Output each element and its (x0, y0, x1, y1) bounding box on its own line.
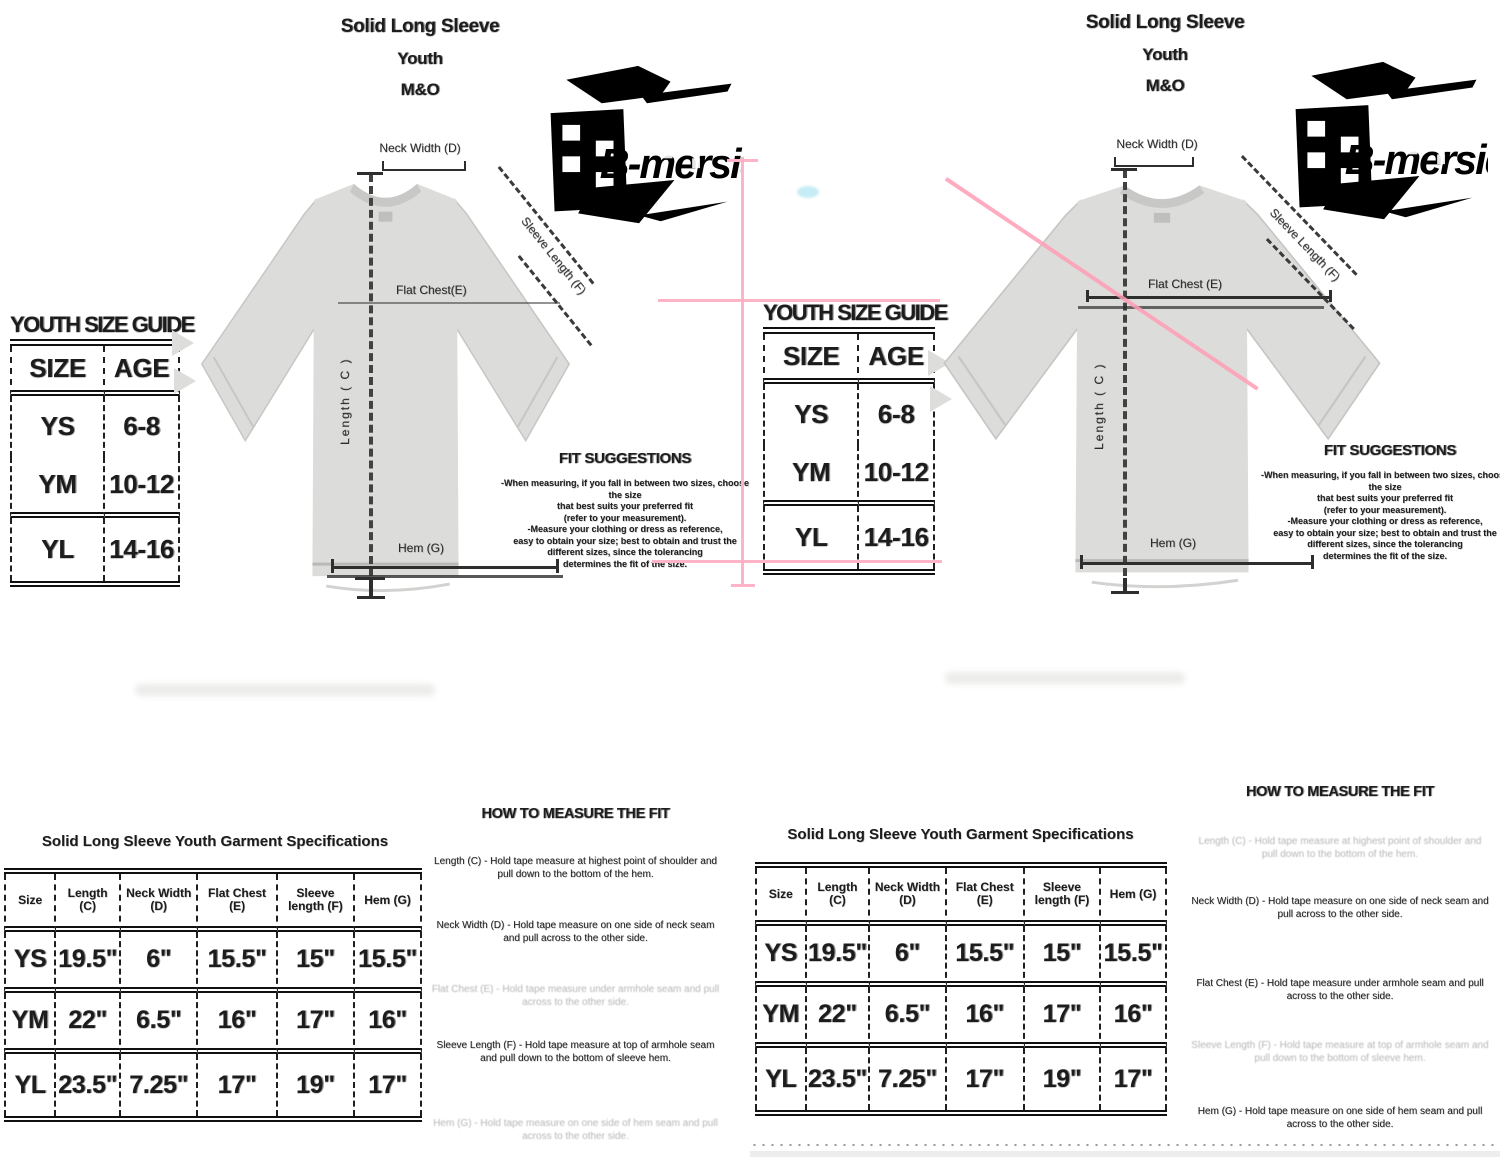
pink-vertical-line (741, 157, 744, 587)
left-hem-label: Hem (G) (398, 541, 444, 555)
spec-cell: YL (755, 1048, 807, 1110)
size-header: SIZE (763, 334, 859, 384)
right-hem-line (1080, 562, 1314, 565)
age-cell: 6-8 (859, 384, 935, 445)
age-cell: 10-12 (105, 457, 180, 518)
left-title-line3: M&O (310, 80, 530, 100)
left-chest-line (338, 302, 560, 304)
fit-line: -When measuring, if you fall in between … (1260, 470, 1500, 493)
fit-line: easy to obtain your size; best to obtain… (1260, 528, 1500, 540)
spec-cell: 6" (870, 926, 946, 987)
right-title-line1: Solid Long Sleeve (1055, 12, 1275, 34)
left-panel-title: Solid Long Sleeve Youth M&O (310, 16, 530, 100)
spec-cell: 17" (198, 1054, 277, 1116)
fit-line: -When measuring, if you fall in between … (500, 478, 750, 501)
spec-cell: 19.5" (807, 926, 871, 987)
smudge-artifact (945, 672, 1185, 684)
right-length-stub (1123, 578, 1127, 592)
spec-cell: 6.5" (870, 987, 946, 1048)
spec-header: Length (C) (807, 868, 871, 926)
how-to-left-heading: HOW TO MEASURE THE FIT (428, 806, 723, 822)
left-length-cap-top (357, 172, 383, 175)
spec-cell: 15.5" (947, 926, 1025, 987)
spec-cell: 15.5" (355, 932, 422, 993)
how-to-right-heading: HOW TO MEASURE THE FIT (1190, 784, 1490, 800)
right-title-line2: Youth (1055, 45, 1275, 65)
spec-cell: 22" (56, 993, 121, 1054)
spec-header: Flat Chest (E) (947, 868, 1025, 926)
left-hem-tick-left (331, 559, 334, 573)
left-size-guide-title: YOUTH SIZE GUIDE (10, 312, 180, 338)
right-length-stub-cap (1111, 591, 1139, 594)
left-length-label: Length ( C ) (338, 325, 352, 445)
left-length-stub-cap (357, 596, 385, 599)
smudge-artifact (135, 684, 435, 696)
how-to-para-neck: Neck Width (D) - Hold tape measure on on… (428, 920, 723, 945)
spec-cell: 16" (355, 993, 422, 1054)
spec-cell: 19.5" (56, 932, 121, 993)
right-hem-label: Hem (G) (1150, 536, 1196, 550)
size-cell: YL (763, 506, 859, 569)
spec-cell: YM (755, 987, 807, 1048)
fit-line: (refer to your measurement). (1260, 505, 1500, 517)
fit-line: different sizes, since the tolerancing (500, 547, 750, 559)
right-length-cap-top (1111, 168, 1137, 171)
spec-header: Neck Width (D) (870, 868, 946, 926)
fit-line: that best suits your preferred fit (500, 501, 750, 513)
spec-cell: 15.5" (1101, 926, 1167, 987)
spec-cell: 17" (278, 993, 355, 1054)
logo-graphic: B-mersid (1288, 58, 1488, 230)
perforation-bar (750, 1151, 1500, 1157)
right-chest-line-2 (1078, 306, 1324, 309)
age-cell: 14-16 (105, 518, 180, 581)
spec-header: Size (755, 868, 807, 926)
spec-cell: 15.5" (198, 932, 277, 993)
right-neck-tick-left (1114, 157, 1116, 167)
size-cell: YS (10, 396, 105, 457)
left-title-line2: Youth (310, 49, 530, 69)
fit-line: (refer to your measurement). (500, 513, 750, 525)
center-size-guide-rule (763, 327, 935, 334)
age-header: AGE (859, 334, 935, 384)
left-title-line1: Solid Long Sleeve (310, 16, 530, 38)
left-neck-tick-left (382, 161, 384, 171)
spec-header: Hem (G) (1101, 868, 1167, 926)
age-cell: 6-8 (105, 396, 180, 457)
left-length-dashed-line (369, 174, 373, 576)
left-brand-logo: B-mersid (543, 62, 743, 234)
spec-cell: 23.5" (56, 1054, 121, 1116)
spec-cell: 17" (1101, 1048, 1167, 1110)
left-fit-text: -When measuring, if you fall in between … (500, 478, 750, 570)
right-length-dashed-line (1123, 170, 1127, 588)
center-size-guide-table: SIZE AGE YS 6-8 YM 10-12 YL 14-16 (763, 334, 935, 575)
spec-cell: 7.25" (121, 1054, 198, 1116)
spec-header: Flat Chest (E) (198, 874, 277, 932)
spec-header: Sleeve length (F) (1025, 868, 1101, 926)
right-title-line3: M&O (1055, 76, 1275, 96)
age-cell: 10-12 (859, 445, 935, 506)
left-flat-chest-label: Flat Chest(E) (396, 283, 467, 297)
right-hem-tick-left (1080, 555, 1083, 569)
fit-line: determines the fit of the size. (1260, 551, 1500, 563)
spec-left-table: Size Length (C) Neck Width (D) Flat Ches… (4, 868, 422, 1122)
spec-header: Hem (G) (355, 874, 422, 932)
left-size-guide-rule (10, 339, 180, 346)
size-cell: YM (10, 457, 105, 518)
spec-cell: YS (4, 932, 56, 993)
how-to-para-neck: Neck Width (D) - Hold tape measure on on… (1190, 896, 1490, 921)
right-neck-bracket (1114, 165, 1194, 167)
size-header: SIZE (10, 346, 105, 396)
right-chest-tick-left (1086, 290, 1089, 302)
left-neck-bracket (382, 169, 466, 171)
left-length-stub (369, 580, 373, 596)
spec-cell: 19" (1025, 1048, 1101, 1110)
how-to-para-sleeve: Sleeve Length (F) - Hold tape measure at… (1190, 1040, 1490, 1065)
pink-bottom-cap (731, 584, 755, 587)
spec-cell: YL (4, 1054, 56, 1116)
spec-cell: 6.5" (121, 993, 198, 1054)
right-neck-tick-right (1192, 157, 1194, 167)
right-length-label: Length ( C ) (1092, 330, 1106, 450)
right-fit-text: -When measuring, if you fall in between … (1260, 470, 1500, 562)
how-to-para-hem: Hem (G) - Hold tape measure on one side … (428, 1118, 723, 1143)
spec-cell: 17" (1025, 987, 1101, 1048)
logo-graphic: B-mersid (543, 62, 743, 234)
fit-line: -Measure your clothing or dress as refer… (1260, 516, 1500, 528)
spec-cell: YM (4, 993, 56, 1054)
left-size-guide-table: SIZE AGE YS 6-8 YM 10-12 YL 14-16 (10, 346, 180, 587)
fit-line: different sizes, since the tolerancing (1260, 539, 1500, 551)
chevron-artifact (174, 368, 196, 394)
how-to-para-sleeve: Sleeve Length (F) - Hold tape measure at… (428, 1040, 723, 1065)
perforation-strip (750, 1142, 1500, 1150)
spec-left-title: Solid Long Sleeve Youth Garment Specific… (0, 833, 430, 850)
size-cell: YM (763, 445, 859, 506)
spec-cell: 16" (947, 987, 1025, 1048)
fit-line: easy to obtain your size; best to obtain… (500, 536, 750, 548)
fit-line: that best suits your preferred fit (1260, 493, 1500, 505)
age-cell: 14-16 (859, 506, 935, 569)
spec-header: Sleeve length (F) (278, 874, 355, 932)
size-cell: YS (763, 384, 859, 445)
spec-header: Neck Width (D) (121, 874, 198, 932)
left-neck-tick-right (464, 161, 466, 171)
spec-cell: 19" (278, 1054, 355, 1116)
left-hem-band-line (327, 575, 563, 578)
spec-right-table: Size Length (C) Neck Width (D) Flat Ches… (755, 862, 1167, 1116)
right-flat-chest-label: Flat Chest (E) (1148, 277, 1222, 291)
size-cell: YL (10, 518, 105, 581)
left-fit-heading: FIT SUGGESTIONS (515, 450, 735, 467)
spec-cell: 16" (1101, 987, 1167, 1048)
age-header: AGE (105, 346, 180, 396)
spec-cell: 17" (355, 1054, 422, 1116)
how-to-para-chest: Flat Chest (E) - Hold tape measure under… (1190, 978, 1490, 1003)
spec-right-title: Solid Long Sleeve Youth Garment Specific… (748, 826, 1173, 843)
size-guide-sheet: { "colors": { "pink_line": "#ffb3c6", "p… (0, 0, 1500, 1159)
spec-cell: 15" (1025, 926, 1101, 987)
how-to-para-chest: Flat Chest (E) - Hold tape measure under… (428, 984, 723, 1009)
center-youth-size-guide: YOUTH SIZE GUIDE SIZE AGE YS 6-8 YM 10-1… (763, 300, 935, 575)
spec-cell: 6" (121, 932, 198, 993)
right-chest-tick-right (1329, 290, 1332, 302)
how-to-para-hem: Hem (G) - Hold tape measure on one side … (1190, 1106, 1490, 1131)
right-panel-title: Solid Long Sleeve Youth M&O (1055, 12, 1275, 96)
spec-cell: 17" (947, 1048, 1025, 1110)
right-neck-width-label: Neck Width (D) (1072, 137, 1242, 151)
chevron-artifact (172, 330, 194, 356)
right-fit-heading: FIT SUGGESTIONS (1285, 442, 1495, 459)
spec-cell: 15" (278, 932, 355, 993)
how-to-para-length: Length (C) - Hold tape measure at highes… (428, 856, 723, 881)
spec-header: Length (C) (56, 874, 121, 932)
cyan-smudge-artifact (797, 186, 819, 198)
spec-cell: 7.25" (870, 1048, 946, 1110)
spec-cell: YS (755, 926, 807, 987)
pink-top-cap (727, 159, 758, 162)
spec-header: Size (4, 874, 56, 932)
right-brand-logo: B-mersid (1288, 58, 1488, 230)
center-size-guide-title: YOUTH SIZE GUIDE (763, 300, 935, 326)
fit-line: -Measure your clothing or dress as refer… (500, 524, 750, 536)
spec-cell: 22" (807, 987, 871, 1048)
spec-cell: 16" (198, 993, 277, 1054)
how-to-para-length: Length (C) - Hold tape measure at highes… (1190, 836, 1490, 861)
left-neck-width-label: Neck Width (D) (335, 141, 505, 155)
left-youth-size-guide: YOUTH SIZE GUIDE SIZE AGE YS 6-8 YM 10-1… (10, 312, 180, 587)
spec-cell: 23.5" (807, 1048, 871, 1110)
